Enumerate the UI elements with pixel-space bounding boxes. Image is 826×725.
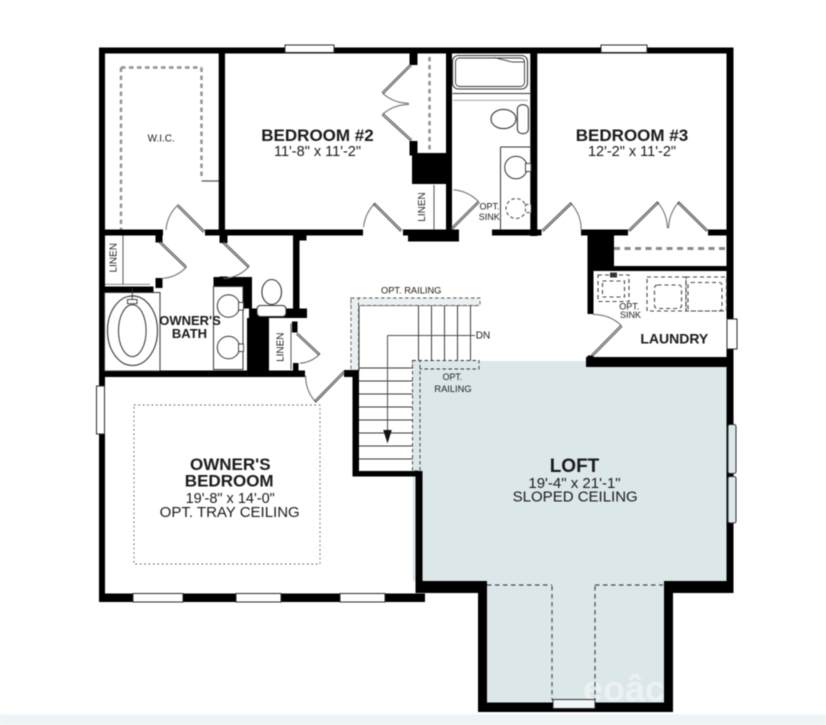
svg-text:OPT. TRAY CEILING: OPT. TRAY CEILING bbox=[160, 504, 300, 521]
svg-text:W.I.C.: W.I.C. bbox=[148, 133, 175, 144]
svg-text:SINK: SINK bbox=[479, 212, 500, 222]
svg-text:LINEN: LINEN bbox=[109, 243, 120, 272]
svg-text:OPT. RAILING: OPT. RAILING bbox=[381, 285, 441, 295]
svg-text:12'-2" x 11'-2": 12'-2" x 11'-2" bbox=[588, 144, 676, 160]
svg-text:11'-8" x 11'-2": 11'-8" x 11'-2" bbox=[274, 144, 361, 160]
svg-text:LOFT: LOFT bbox=[550, 456, 600, 477]
svg-text:RAILING: RAILING bbox=[434, 384, 471, 394]
svg-text:BEDROOM #2: BEDROOM #2 bbox=[261, 126, 373, 145]
svg-text:OPT.: OPT. bbox=[443, 372, 463, 382]
svg-text:OPT.: OPT. bbox=[479, 202, 499, 212]
svg-text:SLOPED CEILING: SLOPED CEILING bbox=[513, 488, 638, 505]
svg-text:DN: DN bbox=[476, 331, 490, 342]
svg-text:BEDROOM #3: BEDROOM #3 bbox=[576, 126, 688, 145]
svg-text:LINEN: LINEN bbox=[417, 192, 428, 221]
svg-text:SINK: SINK bbox=[620, 310, 641, 320]
svg-text:LINEN: LINEN bbox=[276, 332, 287, 361]
svg-text:BEDROOM: BEDROOM bbox=[185, 472, 274, 491]
svg-text:LAUNDRY: LAUNDRY bbox=[640, 331, 709, 347]
svg-text:BATH: BATH bbox=[172, 326, 207, 341]
